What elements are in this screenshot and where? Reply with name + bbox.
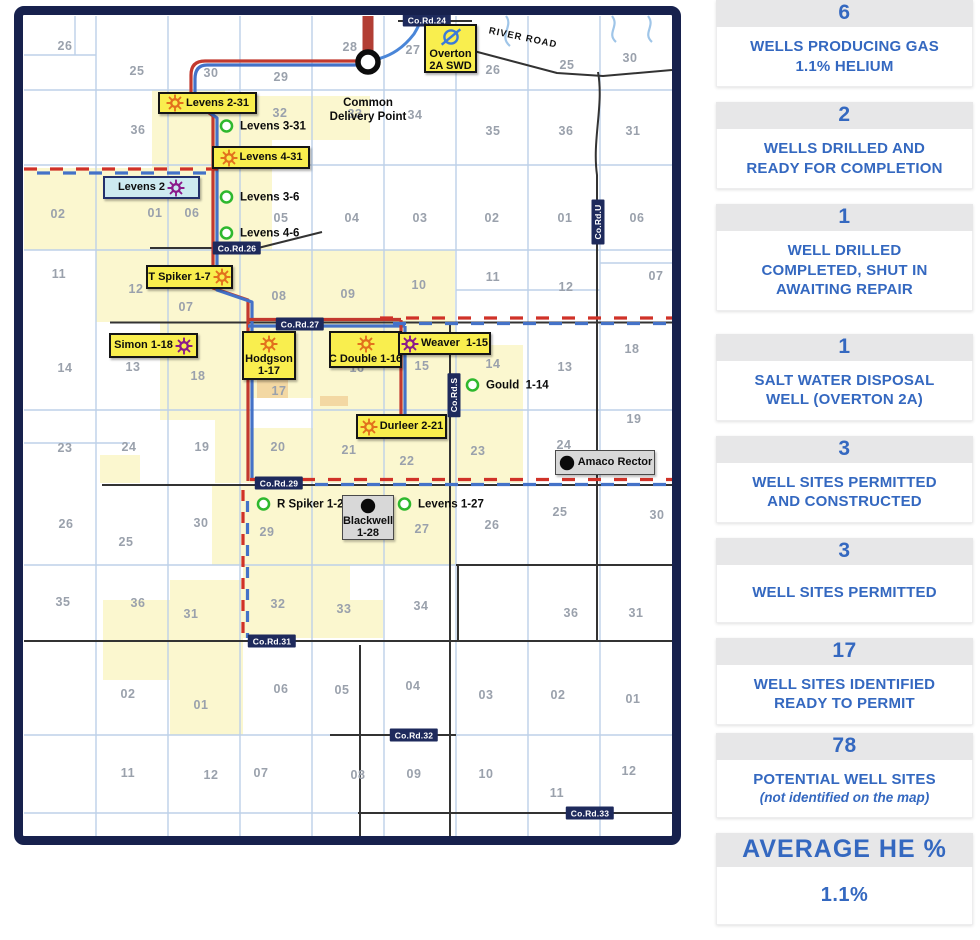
producing-well-sun-icon — [360, 418, 378, 436]
well-marker-text: Levens 4-6 — [240, 227, 299, 239]
common-delivery-point-label: Common Delivery Point — [330, 96, 407, 125]
section-number: 26 — [484, 518, 499, 532]
plugged-well-dot-icon — [359, 497, 377, 515]
section-number: 01 — [147, 206, 162, 220]
stat-label: POTENTIAL WELL SITES(not identified on t… — [716, 760, 973, 818]
well-label-levens-2: Levens 2 — [103, 176, 200, 199]
stat-block: 2WELLS DRILLED AND READY FOR COMPLETION — [716, 102, 973, 189]
page: RIVER ROAD Common Delivery Point 2625302… — [0, 0, 980, 849]
well-marker-text: Levens 1-27 — [418, 498, 484, 510]
section-number: 10 — [411, 278, 426, 292]
well-label-text: C Double 1-16 — [329, 353, 402, 365]
section-number: 23 — [470, 444, 485, 458]
section-number: 04 — [344, 211, 359, 225]
average-he-body: 1.1% — [716, 867, 973, 925]
well-label-text: Levens 2 — [118, 181, 165, 193]
section-number: 03 — [478, 688, 493, 702]
stat-label: WELL DRILLED COMPLETED, SHUT IN AWAITING… — [716, 231, 973, 311]
section-number: 11 — [52, 267, 66, 281]
stat-value: 2 — [716, 102, 973, 129]
road-label-chip: Co.Rd.31 — [248, 635, 296, 648]
section-number: 28 — [342, 40, 357, 54]
section-number: 34 — [413, 599, 428, 613]
well-label-text: T Spiker 1-7 — [148, 271, 210, 283]
section-number: 23 — [57, 441, 72, 455]
stats-sidebar: 6WELLS PRODUCING GAS 1.1% HELIUM2WELLS D… — [716, 0, 973, 940]
river-road-label: RIVER ROAD — [488, 25, 558, 50]
permitted-well-circle-icon — [218, 189, 235, 206]
map-label-layer: RIVER ROAD Common Delivery Point 2625302… — [23, 15, 672, 836]
shut-in-well-sun-icon — [167, 179, 185, 197]
well-label-text: Weaver 1-15 — [421, 337, 488, 349]
stat-value: 1 — [716, 204, 973, 231]
stat-label: WELL SITES IDENTIFIED READY TO PERMIT — [716, 665, 973, 725]
well-marker-text: Levens 3-6 — [240, 191, 299, 203]
section-number: 22 — [399, 454, 414, 468]
stat-value: 78 — [716, 733, 973, 760]
stat-label: SALT WATER DISPOSAL WELL (OVERTON 2A) — [716, 361, 973, 421]
section-number: 34 — [407, 108, 422, 122]
section-number: 11 — [121, 766, 135, 780]
section-number: 02 — [550, 688, 565, 702]
section-number: 35 — [55, 595, 70, 609]
well-label-text: Amaco Rector — [578, 456, 653, 468]
section-number: 25 — [129, 64, 144, 78]
road-label-chip: Co.Rd.33 — [566, 807, 614, 820]
well-label-weaver-1-15: Weaver 1-15 — [398, 332, 491, 355]
producing-well-sun-icon — [166, 94, 184, 112]
section-number: 02 — [120, 687, 135, 701]
section-number: 18 — [624, 342, 639, 356]
stat-block: 1WELL DRILLED COMPLETED, SHUT IN AWAITIN… — [716, 204, 973, 311]
section-number: 12 — [558, 280, 573, 294]
section-number: 01 — [625, 692, 640, 706]
well-marker-text: Levens 3-31 — [240, 120, 306, 132]
permitted-well-circle-icon — [218, 225, 235, 242]
average-he-value: 1.1% — [729, 882, 960, 908]
section-number: 30 — [193, 516, 208, 530]
section-number: 32 — [270, 597, 285, 611]
well-label-hodgson-1-17: Hodgson1-17 — [242, 331, 296, 380]
section-number: 31 — [628, 606, 643, 620]
section-number: 14 — [57, 361, 72, 375]
section-number: 35 — [485, 124, 500, 138]
well-label-amaco-rector: Amaco Rector — [555, 450, 655, 475]
plugged-well-dot-icon — [558, 454, 576, 472]
section-number: 31 — [183, 607, 198, 621]
well-label-blackwell-1-28: Blackwell1-28 — [342, 495, 394, 540]
section-number: 06 — [184, 206, 199, 220]
stat-value: 6 — [716, 0, 973, 27]
well-marker-levens-3-31: Levens 3-31 — [218, 118, 306, 135]
road-label-chip: Co.Rd.U — [592, 200, 605, 245]
well-label-levens-2-31: Levens 2-31 — [158, 92, 257, 114]
producing-well-sun-icon — [220, 149, 238, 167]
section-number: 25 — [118, 535, 133, 549]
well-marker-levens-3-6: Levens 3-6 — [218, 189, 299, 206]
well-label-t-spiker-1-7: T Spiker 1-7 — [146, 265, 233, 289]
section-number: 01 — [193, 698, 208, 712]
section-number: 30 — [622, 51, 637, 65]
section-number: 33 — [336, 602, 351, 616]
stat-block: 3WELL SITES PERMITTED — [716, 538, 973, 623]
permitted-well-circle-icon — [218, 118, 235, 135]
well-label-text: Durleer 2-21 — [380, 420, 444, 432]
ready-well-sun-icon — [175, 337, 193, 355]
well-marker-text: R Spiker 1-29 — [277, 498, 350, 510]
well-label-text: Overton2A SWD — [429, 48, 471, 73]
section-number: 12 — [203, 768, 218, 782]
section-number: 26 — [485, 63, 500, 77]
section-number: 08 — [350, 768, 365, 782]
section-number: 11 — [550, 786, 564, 800]
permitted-well-circle-icon — [255, 496, 272, 513]
stat-block: 3WELL SITES PERMITTED AND CONSTRUCTED — [716, 436, 973, 523]
stat-label: WELL SITES PERMITTED — [716, 565, 973, 623]
road-label-chip: Co.Rd.27 — [276, 318, 324, 331]
section-number: 08 — [271, 289, 286, 303]
stat-sublabel: (not identified on the map) — [729, 789, 960, 807]
stat-label: WELLS DRILLED AND READY FOR COMPLETION — [716, 129, 973, 189]
section-number: 26 — [57, 39, 72, 53]
stat-block: 17WELL SITES IDENTIFIED READY TO PERMIT — [716, 638, 973, 725]
well-label-levens-4-31: Levens 4-31 — [212, 146, 310, 169]
section-number: 29 — [273, 70, 288, 84]
well-label-text: Simon 1-18 — [114, 339, 173, 351]
well-field-map: RIVER ROAD Common Delivery Point 2625302… — [14, 6, 681, 845]
stat-value: 17 — [716, 638, 973, 665]
section-number: 06 — [273, 682, 288, 696]
stat-block: 78POTENTIAL WELL SITES(not identified on… — [716, 733, 973, 818]
section-number: 02 — [50, 207, 65, 221]
section-number: 24 — [121, 440, 136, 454]
section-number: 09 — [406, 767, 421, 781]
well-marker-levens-1-27: Levens 1-27 — [396, 496, 484, 513]
producing-well-sun-icon — [357, 335, 375, 353]
section-number: 26 — [58, 517, 73, 531]
section-number: 21 — [341, 443, 356, 457]
section-number: 07 — [648, 269, 663, 283]
permitted-well-circle-icon — [464, 377, 481, 394]
well-marker-text: Gould 1-14 — [486, 379, 549, 391]
stat-label: WELL SITES PERMITTED AND CONSTRUCTED — [716, 463, 973, 523]
well-marker-levens-4-6: Levens 4-6 — [218, 225, 299, 242]
producing-well-sun-icon — [213, 268, 231, 286]
section-number: 36 — [563, 606, 578, 620]
section-number: 05 — [334, 683, 349, 697]
stat-blocks: 6WELLS PRODUCING GAS 1.1% HELIUM2WELLS D… — [716, 0, 973, 818]
section-number: 25 — [552, 505, 567, 519]
section-number: 12 — [621, 764, 636, 778]
section-number: 19 — [194, 440, 209, 454]
section-number: 05 — [273, 211, 288, 225]
section-number: 09 — [340, 287, 355, 301]
well-label-c-double-1-16: C Double 1-16 — [329, 331, 402, 368]
well-label-overton-2a-swd: Overton2A SWD — [424, 24, 477, 73]
section-number: 12 — [128, 282, 143, 296]
section-number: 36 — [558, 124, 573, 138]
section-number: 02 — [484, 211, 499, 225]
permitted-well-circle-icon — [396, 496, 413, 513]
section-number: 30 — [203, 66, 218, 80]
stat-label: WELLS PRODUCING GAS 1.1% HELIUM — [716, 27, 973, 87]
stat-value: 3 — [716, 538, 973, 565]
section-number: 11 — [486, 270, 500, 284]
section-number: 27 — [414, 522, 429, 536]
stat-block: 1SALT WATER DISPOSAL WELL (OVERTON 2A) — [716, 334, 973, 421]
section-number: 03 — [412, 211, 427, 225]
section-number: 07 — [178, 300, 193, 314]
road-label-chip: Co.Rd.26 — [213, 242, 261, 255]
producing-well-sun-icon — [260, 335, 278, 353]
section-number: 17 — [271, 384, 286, 398]
section-number: 27 — [405, 43, 420, 57]
section-number: 30 — [649, 508, 664, 522]
section-number: 20 — [270, 440, 285, 454]
stat-value: 3 — [716, 436, 973, 463]
section-number: 36 — [130, 596, 145, 610]
section-number: 06 — [629, 211, 644, 225]
average-he-label: AVERAGE HE % — [716, 833, 973, 867]
road-label-chip: Co.Rd.29 — [255, 477, 303, 490]
road-label-chip: Co.Rd.32 — [390, 729, 438, 742]
section-number: 15 — [414, 359, 429, 373]
well-marker-gould-1-14: Gould 1-14 — [464, 377, 549, 394]
swd-no-symbol-icon — [440, 26, 462, 48]
well-label-durleer-2-21: Durleer 2-21 — [356, 414, 447, 439]
well-label-text: Hodgson1-17 — [245, 353, 293, 378]
well-label-simon-1-18: Simon 1-18 — [109, 333, 198, 358]
section-number: 04 — [405, 679, 420, 693]
section-number: 29 — [259, 525, 274, 539]
average-he-block: AVERAGE HE % 1.1% — [716, 833, 973, 925]
section-number: 19 — [626, 412, 641, 426]
section-number: 01 — [557, 211, 572, 225]
section-number: 25 — [559, 58, 574, 72]
section-number: 36 — [130, 123, 145, 137]
section-number: 31 — [625, 124, 640, 138]
section-number: 13 — [125, 360, 140, 374]
stat-block: 6WELLS PRODUCING GAS 1.1% HELIUM — [716, 0, 973, 87]
road-label-chip: Co.Rd.S — [448, 373, 461, 417]
stat-value: 1 — [716, 334, 973, 361]
well-label-text: Levens 2-31 — [186, 97, 249, 109]
well-label-text: Blackwell1-28 — [343, 515, 393, 540]
section-number: 07 — [253, 766, 268, 780]
section-number: 14 — [485, 357, 500, 371]
ready-well-sun-icon — [401, 335, 419, 353]
section-number: 10 — [478, 767, 493, 781]
section-number: 18 — [190, 369, 205, 383]
well-label-text: Levens 4-31 — [240, 151, 303, 163]
section-number: 13 — [557, 360, 572, 374]
well-marker-r-spiker-1-29: R Spiker 1-29 — [255, 496, 350, 513]
